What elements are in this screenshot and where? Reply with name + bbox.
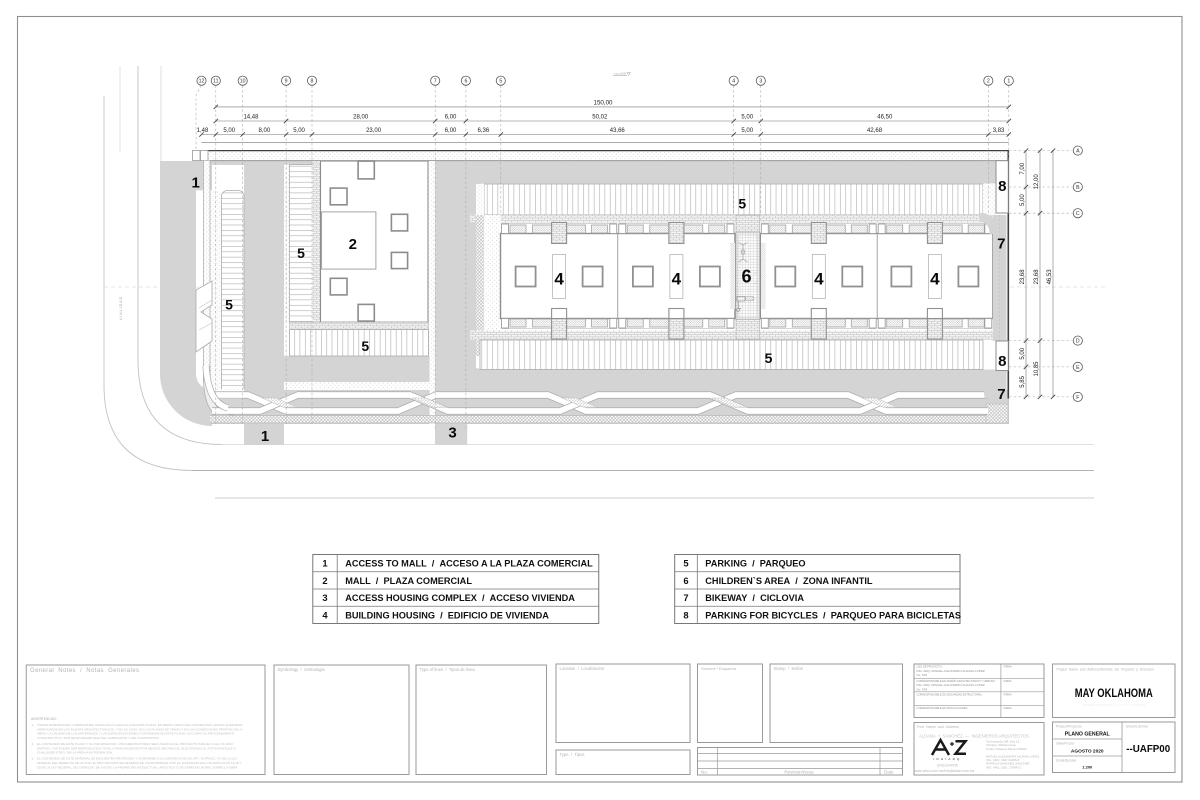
svg-text:PARKING FOR BICYCLES / PARQU: PARKING FOR BICYCLES / PARQUEO PARA BICI… bbox=[705, 610, 961, 620]
svg-text:2: 2 bbox=[322, 575, 327, 586]
svg-text:3,83: 3,83 bbox=[993, 128, 1005, 134]
svg-text:MALL / PLAZA COMERCIAL: MALL / PLAZA COMERCIAL bbox=[345, 576, 472, 586]
svg-text:4: 4 bbox=[814, 270, 824, 289]
svg-text:7: 7 bbox=[683, 592, 688, 603]
svg-text:No.: No. bbox=[701, 770, 708, 775]
svg-text:1:200: 1:200 bbox=[1082, 765, 1092, 770]
svg-text:CUALQUIER OTRO, SIN LA PREVIA: CUALQUIER OTRO, SIN LA PREVIA AUTORIZACI… bbox=[37, 751, 113, 755]
svg-text:5,00: 5,00 bbox=[1020, 194, 1026, 206]
svg-text:7: 7 bbox=[997, 236, 1005, 253]
svg-text:1.: 1. bbox=[32, 723, 35, 727]
svg-text:5: 5 bbox=[765, 350, 773, 366]
svg-text:ADVERTENCIAS:: ADVERTENCIAS: bbox=[31, 717, 57, 721]
svg-text:No. 678: No. 678 bbox=[917, 673, 928, 677]
svg-text:8: 8 bbox=[998, 353, 1006, 370]
svg-text:10,85: 10,85 bbox=[1034, 361, 1040, 377]
svg-text:43,66: 43,66 bbox=[610, 128, 626, 134]
svg-text:5: 5 bbox=[683, 558, 688, 569]
svg-text:1: 1 bbox=[261, 428, 269, 445]
svg-text:6,00: 6,00 bbox=[445, 114, 457, 120]
svg-text:50,02: 50,02 bbox=[592, 114, 608, 120]
svg-text:1: 1 bbox=[1007, 79, 1010, 85]
svg-text:→: → bbox=[753, 280, 757, 285]
svg-text:1: 1 bbox=[192, 175, 200, 192]
svg-text:Firm Name and Address: Firm Name and Address bbox=[917, 725, 959, 729]
svg-text:General Notes / Notas Gene: General Notes / Notas Generales bbox=[30, 668, 139, 674]
svg-text:→: → bbox=[753, 270, 757, 275]
svg-text:F: F bbox=[1076, 395, 1079, 401]
svg-text:9: 9 bbox=[285, 79, 288, 85]
svg-text:www.zelco.com.mx/info@aldan.co: www.zelco.com.mx/info@aldan.com.mx bbox=[915, 769, 975, 773]
svg-text:7,00: 7,00 bbox=[1020, 162, 1026, 174]
svg-text:14,48: 14,48 bbox=[243, 114, 259, 120]
svg-text:4: 4 bbox=[672, 270, 682, 289]
svg-text:10: 10 bbox=[240, 79, 246, 85]
svg-text:150,00: 150,00 bbox=[594, 100, 613, 107]
svg-text:n.p.t ±0,00: n.p.t ±0,00 bbox=[614, 72, 627, 76]
svg-text:FIRMA: FIRMA bbox=[1004, 706, 1012, 710]
svg-text:8: 8 bbox=[683, 609, 688, 620]
svg-text:Symbology / Simbologia: Symbology / Simbologia bbox=[278, 667, 326, 672]
svg-text:2: 2 bbox=[987, 79, 990, 85]
svg-text:--UAFP00: --UAFP00 bbox=[1126, 743, 1170, 755]
svg-text:5: 5 bbox=[297, 245, 305, 261]
svg-text:Sheet/Lámina: Sheet/Lámina bbox=[1126, 725, 1148, 729]
svg-text:5,00: 5,00 bbox=[741, 114, 753, 120]
svg-text:4: 4 bbox=[732, 79, 735, 85]
svg-text:3: 3 bbox=[448, 425, 456, 442]
svg-text:CHILDREN`S AREA / ZONA INFAN: CHILDREN`S AREA / ZONA INFANTIL bbox=[705, 576, 873, 586]
svg-text:7: 7 bbox=[434, 79, 437, 85]
svg-text:42,68: 42,68 bbox=[867, 128, 883, 134]
svg-text:6: 6 bbox=[683, 575, 688, 586]
svg-text:4: 4 bbox=[322, 609, 328, 620]
svg-text:ING. ARQ. CED. 2789472: ING. ARQ. CED. 2789472 bbox=[986, 765, 1021, 769]
svg-text:Type of lines / Tipos de lin: Type of lines / Tipos de linea bbox=[420, 667, 476, 672]
svg-text:B: B bbox=[1076, 185, 1080, 191]
svg-text:5,00: 5,00 bbox=[223, 128, 235, 134]
svg-text:Type / Tipos: Type / Tipos bbox=[560, 752, 585, 757]
svg-text:ACCESS HOUSING COMPLEX / ACC: ACCESS HOUSING COMPLEX / ACCESO VIVIENDA bbox=[345, 593, 575, 603]
svg-text:FIRMA: FIRMA bbox=[1004, 679, 1012, 683]
svg-text:3.: 3. bbox=[32, 757, 35, 761]
svg-text:1,48: 1,48 bbox=[197, 128, 209, 134]
svg-text:11: 11 bbox=[213, 79, 218, 85]
svg-text:8,00: 8,00 bbox=[259, 128, 271, 134]
svg-text:6: 6 bbox=[464, 79, 467, 85]
svg-text:BIKEWAY / CICLOVIA: BIKEWAY / CICLOVIA bbox=[705, 593, 804, 603]
svg-text:1: 1 bbox=[322, 558, 327, 569]
svg-text:CONSTRUCTIVO, SON RESPONSABILI: CONSTRUCTIVO, SON RESPONSABILIDAD DEL FA… bbox=[37, 736, 160, 740]
svg-text:7: 7 bbox=[997, 386, 1005, 403]
svg-text:FIRMA: FIRMA bbox=[1004, 692, 1012, 696]
svg-text:2.: 2. bbox=[32, 742, 35, 746]
svg-text:Scale/Escala: Scale/Escala bbox=[1056, 759, 1076, 763]
svg-text:5: 5 bbox=[225, 297, 233, 313]
svg-text:INGIARQ: INGIARQ bbox=[933, 757, 961, 761]
svg-text:Location / Localizacion: Location / Localizacion bbox=[560, 666, 605, 671]
svg-text:6,36: 6,36 bbox=[478, 128, 490, 134]
svg-text:Centro Tabasco-Mexico 86000: Centro Tabasco-Mexico 86000 bbox=[986, 747, 1027, 751]
svg-text:A: A bbox=[1076, 149, 1080, 155]
svg-text:46,50: 46,50 bbox=[877, 114, 893, 120]
svg-text:4: 4 bbox=[930, 270, 940, 289]
svg-text:Revision/Issue: Revision/Issue bbox=[784, 770, 814, 775]
svg-text:PARKING / PARQUEO: PARKING / PARQUEO bbox=[705, 559, 805, 569]
svg-text:MAY OKLAHOMA: MAY OKLAHOMA bbox=[1075, 688, 1153, 700]
svg-text:12,00: 12,00 bbox=[1034, 174, 1040, 190]
svg-text:Project/Proyecto: Project/Proyecto bbox=[1056, 725, 1082, 729]
svg-text:5: 5 bbox=[499, 79, 502, 85]
svg-text:BUILDING HOUSING / EDIFICIO: BUILDING HOUSING / EDIFICIO DE VIVIENDA bbox=[345, 610, 549, 620]
svg-text:6: 6 bbox=[741, 267, 751, 287]
svg-text:12: 12 bbox=[199, 79, 205, 85]
svg-text:(943) 3240725: (943) 3240725 bbox=[937, 764, 958, 768]
svg-text:Stamp / Sellos: Stamp / Sellos bbox=[774, 666, 803, 671]
svg-text:28,00: 28,00 bbox=[353, 114, 369, 120]
svg-text:4: 4 bbox=[554, 270, 564, 289]
svg-text:C: C bbox=[1076, 211, 1080, 217]
svg-text:AGOSTO 2020: AGOSTO 2020 bbox=[1071, 749, 1104, 755]
svg-text:6,00: 6,00 bbox=[445, 128, 457, 134]
svg-text:CORRESPONSABLE EN SEGURIDAD ES: CORRESPONSABLE EN SEGURIDAD ESTRUCTURAL: bbox=[917, 692, 983, 696]
svg-text:5: 5 bbox=[361, 338, 369, 354]
svg-text:46,53: 46,53 bbox=[1047, 269, 1053, 285]
svg-text:D: D bbox=[1076, 339, 1080, 345]
svg-text:23,00: 23,00 bbox=[366, 128, 382, 134]
svg-text:Date: Date bbox=[884, 770, 894, 775]
svg-text:5,00: 5,00 bbox=[1020, 347, 1026, 359]
svg-text:PRIVADA OKLAHOMA No. 14 COL. N: PRIVADA OKLAHOMA No. 14 COL. NAPOLES bbox=[1082, 703, 1145, 707]
svg-text:5,00: 5,00 bbox=[741, 128, 753, 134]
svg-text:FIRMA: FIRMA bbox=[1004, 665, 1012, 669]
svg-text:CORRESPONSABLE EN INSTALACIONE: CORRESPONSABLE EN INSTALACIONES: bbox=[917, 706, 969, 710]
svg-text:8: 8 bbox=[311, 79, 314, 85]
svg-text:No. 678: No. 678 bbox=[917, 687, 928, 691]
svg-text:5,00: 5,00 bbox=[293, 128, 305, 134]
svg-text:23,68: 23,68 bbox=[1034, 269, 1040, 285]
svg-text:Project Name and Address/No: Project Name and Address/Nombre del Proy… bbox=[1057, 668, 1155, 672]
svg-text:PLANO GENERAL: PLANO GENERAL bbox=[1065, 732, 1111, 738]
svg-text:20 DE LA LEY FEDERAL DEL DERE: 20 DE LA LEY FEDERAL DEL DERECHO DE AUTO… bbox=[37, 765, 238, 769]
svg-text:8: 8 bbox=[998, 178, 1006, 195]
svg-text:E: E bbox=[1076, 365, 1080, 371]
svg-text:3: 3 bbox=[759, 79, 762, 85]
svg-text:Date/Fecha: Date/Fecha bbox=[1056, 742, 1074, 746]
svg-text:ALDANA + SANCHEZ — INGENIE: ALDANA + SANCHEZ — INGENIEROS ARQUITECTO… bbox=[919, 734, 1029, 739]
svg-text:2: 2 bbox=[349, 236, 357, 253]
svg-text:Scheme / Esquema: Scheme / Esquema bbox=[701, 666, 737, 671]
svg-text:3: 3 bbox=[322, 592, 327, 603]
svg-text:ACCESS TO MALL / ACCESO A LA: ACCESS TO MALL / ACCESO A LA PLAZA COMER… bbox=[345, 559, 593, 569]
svg-text:5: 5 bbox=[738, 196, 746, 212]
svg-text:23,68: 23,68 bbox=[1020, 269, 1026, 285]
svg-text:VIALIDAD: VIALIDAD bbox=[119, 296, 123, 320]
svg-text:5,85: 5,85 bbox=[1020, 375, 1026, 387]
